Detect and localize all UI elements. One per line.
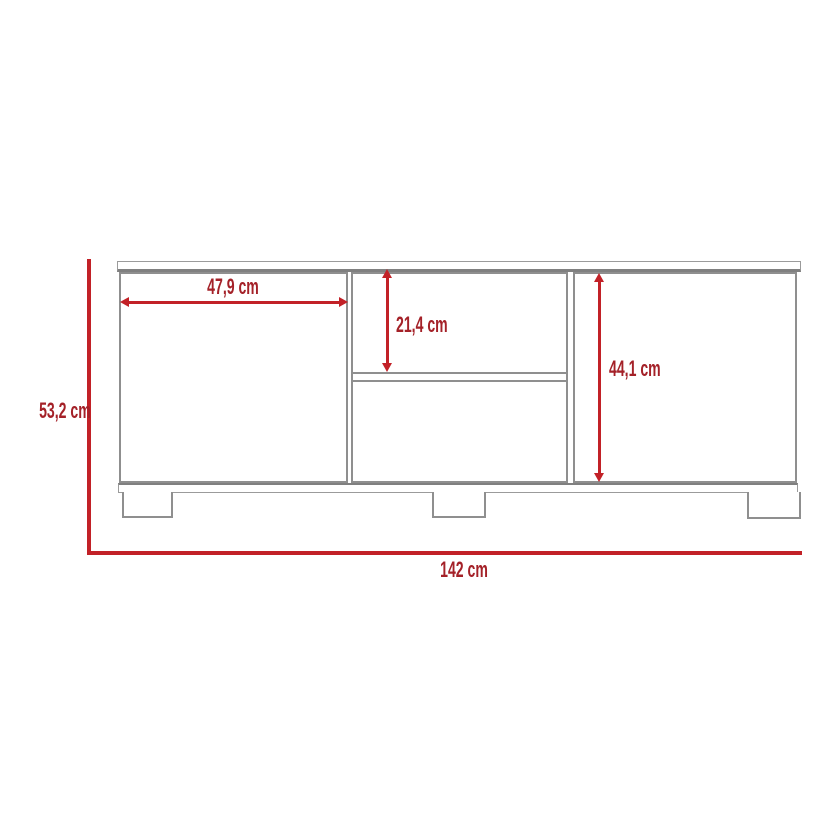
arrowhead-up-icon: [594, 273, 604, 282]
overall-height-label: 53,2 cm: [10, 400, 82, 422]
opening-height-arrow: [382, 269, 392, 372]
overall-width-label: 142 cm: [427, 559, 502, 581]
leg-middle: [432, 492, 486, 518]
leg-left: [122, 492, 173, 518]
opening-height-label: 21,4 cm: [396, 314, 477, 336]
shelf-top-edge: [353, 372, 566, 374]
arrowhead-right-icon: [339, 297, 348, 307]
arrowhead-up-icon: [382, 269, 392, 278]
left-door-width-label: 47,9 cm: [193, 276, 274, 298]
right-door-height-label: 44,1 cm: [609, 358, 690, 380]
tv-stand-dimension-diagram: 53,2 cm 142 cm 47,9 cm 21,4 cm 44,1 cm: [0, 0, 840, 840]
leg-right: [747, 492, 801, 519]
arrowhead-down-icon: [594, 473, 604, 482]
drawer-front: [353, 382, 566, 481]
overall-width-dimension-line: [87, 551, 802, 555]
right-door-height-arrow: [594, 273, 604, 482]
arrowhead-down-icon: [382, 363, 392, 372]
top-panel: [117, 261, 801, 272]
arrowhead-left-icon: [120, 297, 129, 307]
